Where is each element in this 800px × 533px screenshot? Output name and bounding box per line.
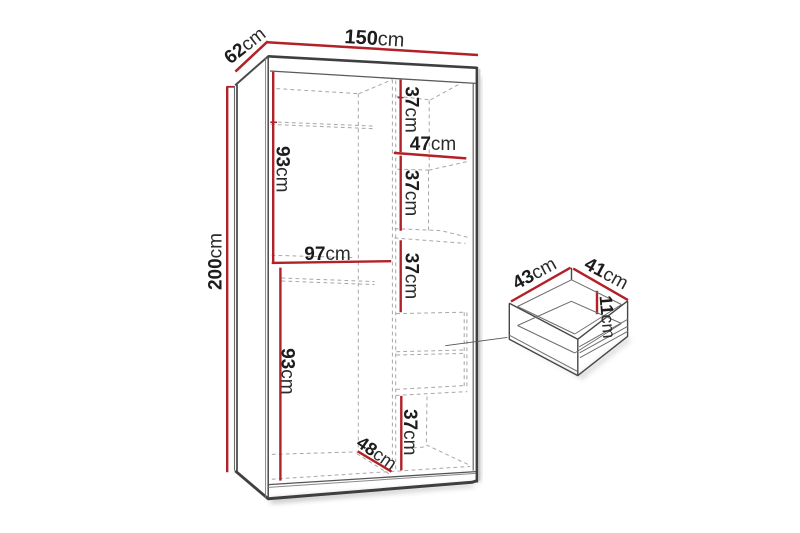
svg-text:37cm: 37cm xyxy=(401,170,422,216)
svg-text:150cm: 150cm xyxy=(344,26,405,52)
svg-text:37cm: 37cm xyxy=(400,86,421,132)
svg-text:47cm: 47cm xyxy=(410,134,456,155)
svg-text:200cm: 200cm xyxy=(205,233,226,290)
svg-text:97cm: 97cm xyxy=(304,244,350,265)
svg-text:93cm: 93cm xyxy=(277,348,298,394)
svg-text:37cm: 37cm xyxy=(399,409,420,455)
svg-text:11cm: 11cm xyxy=(596,295,620,340)
svg-text:37cm: 37cm xyxy=(401,253,422,299)
svg-text:48cm: 48cm xyxy=(353,432,401,474)
svg-text:93cm: 93cm xyxy=(272,146,293,192)
